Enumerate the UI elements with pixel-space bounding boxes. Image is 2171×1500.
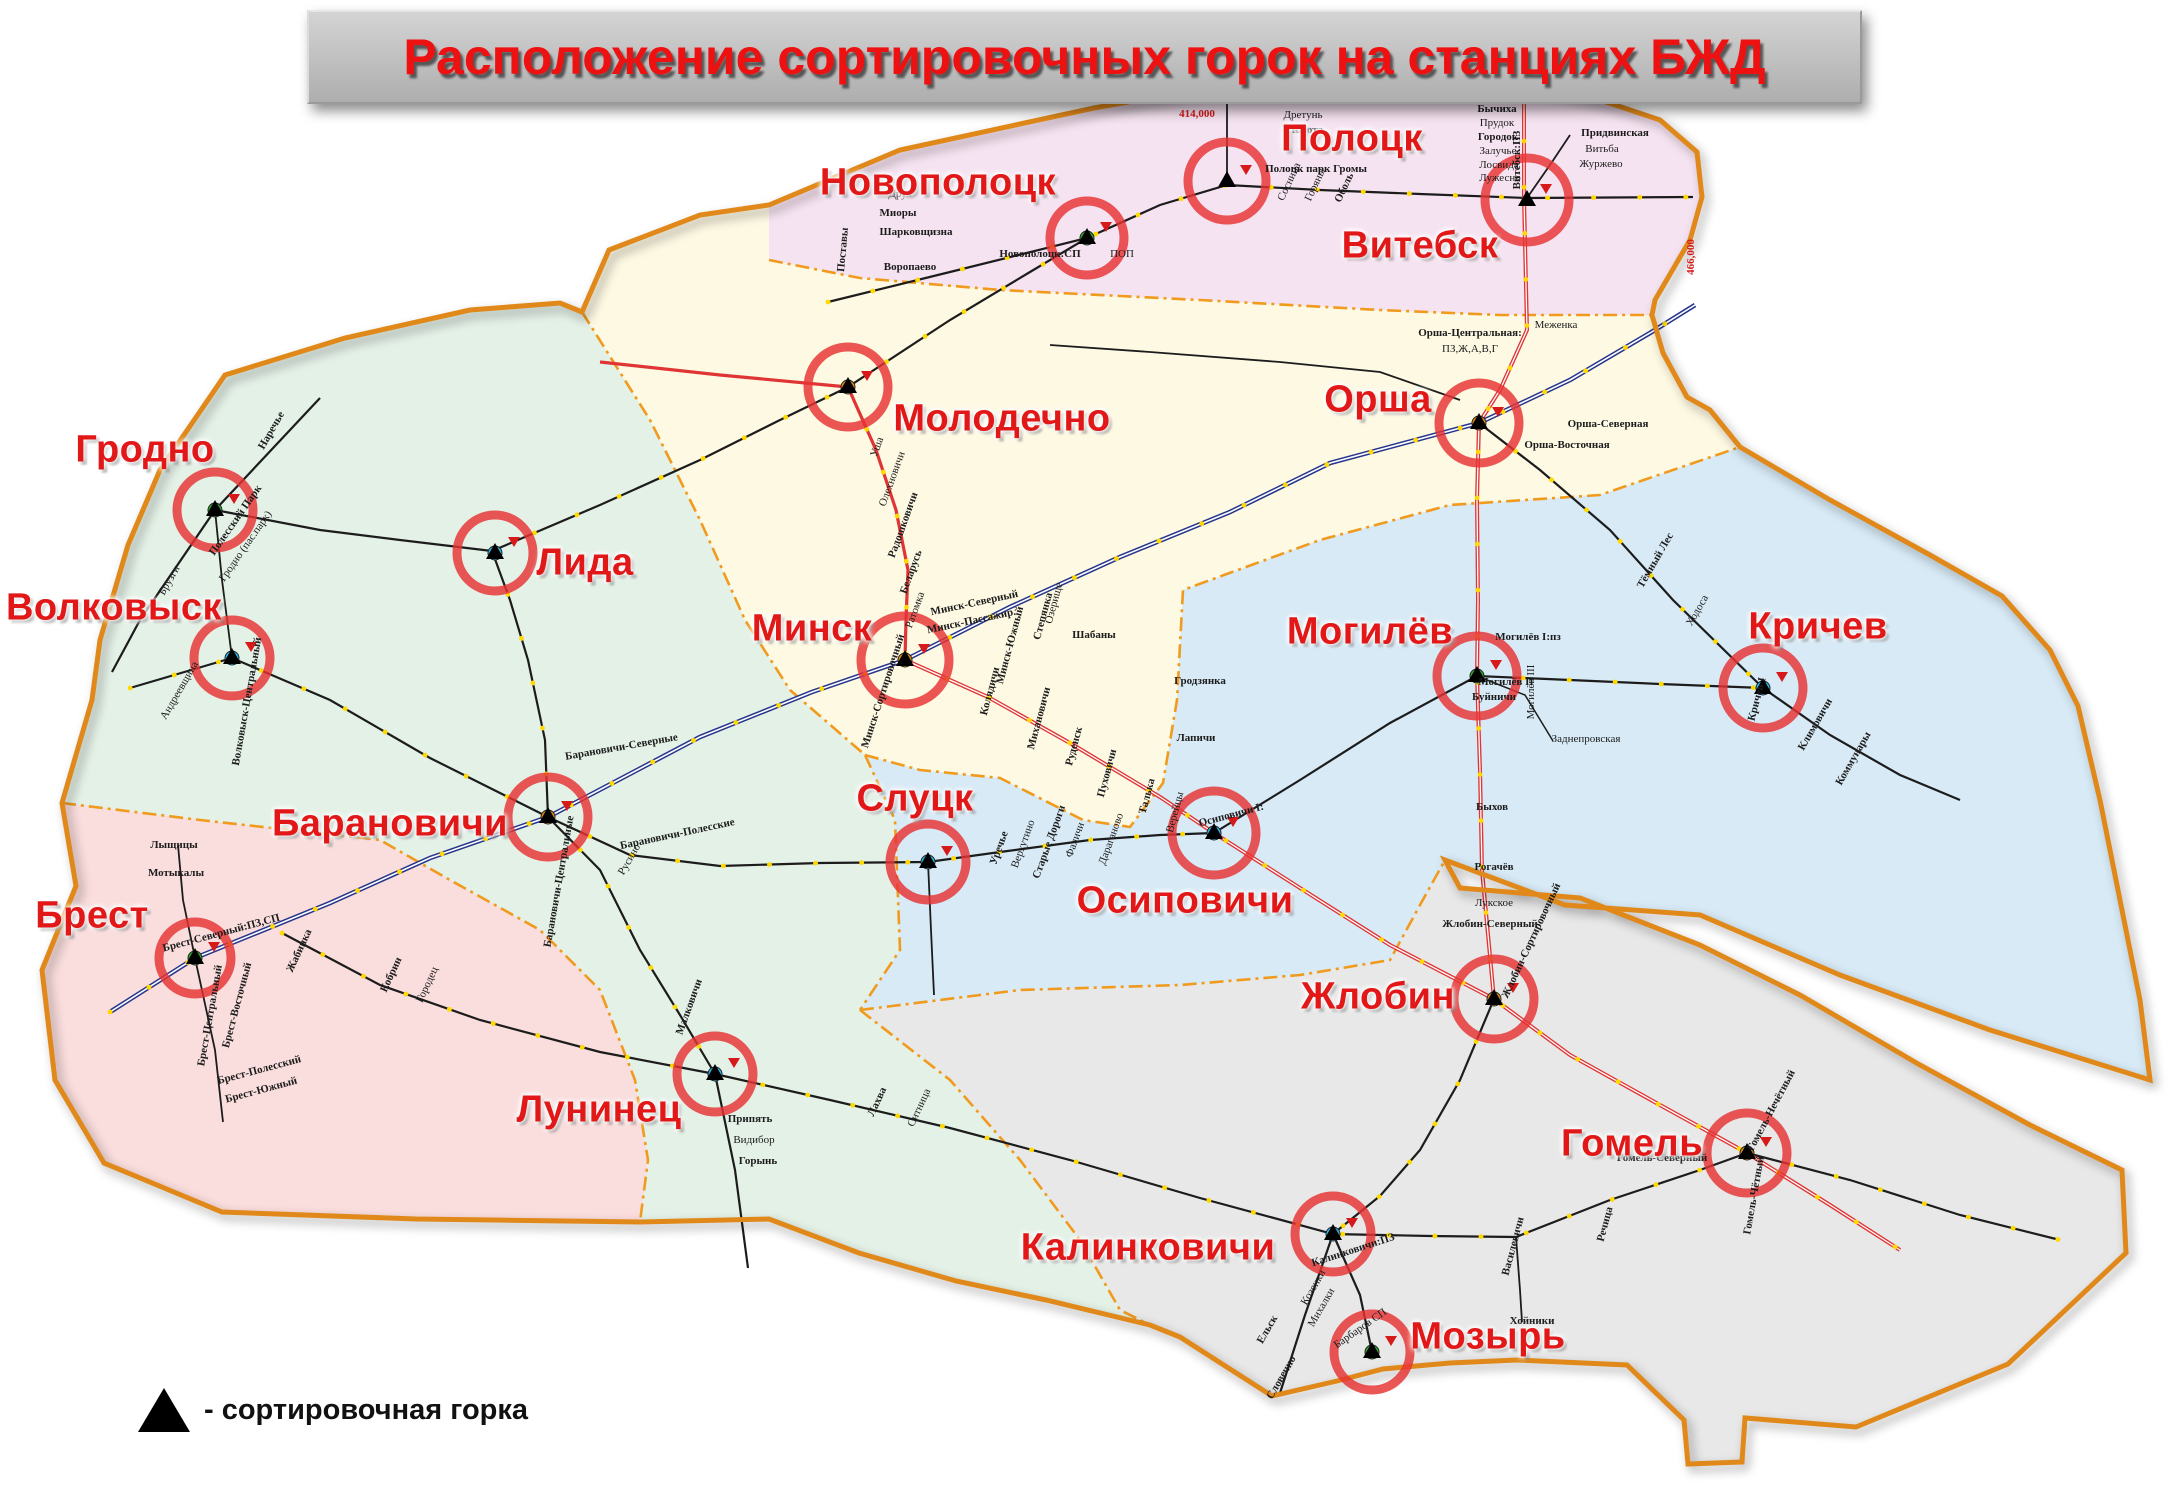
station-label-osipovichi: Осиповичи [1077,880,1294,923]
small-station-label: Лапичи [1177,732,1216,744]
small-station-label: Заднепровская [1552,733,1621,745]
station-label-minsk: Минск [752,608,873,651]
station-label-mozyr: Мозырь [1410,1316,1565,1359]
legend: - сортировочная горка [138,1388,528,1432]
small-station-label: Рогачёв [1474,861,1513,873]
small-station-label: Мотыкалы [148,867,205,879]
station-label-volkovysk: Волковыск [6,587,222,630]
station-label-luninets: Лунинец [516,1089,681,1132]
small-station-label: Орша-Центральная: [1418,327,1522,339]
small-station-label: Новополоцк:СП [999,248,1081,260]
station-label-molodechno: Молодечно [893,398,1110,441]
small-station-label: Лыщицы [150,839,198,851]
station-label-zhlobin: Жлобин [1301,976,1455,1019]
small-station-label: Орша-Восточная [1524,439,1609,451]
station-label-mogilev: Могилёв [1287,611,1453,654]
station-label-baranovichi: Барановичи [272,803,508,846]
small-station-label: Журжево [1579,158,1623,170]
small-station-label: Прудок [1480,117,1515,129]
station-label-slutsk: Слуцк [856,778,973,821]
small-station-label: Гродзянка [1174,675,1226,687]
page-title: Расположение сортировочных горок на стан… [403,28,1765,86]
small-station-label: Бычиха [1477,103,1517,115]
small-station-label: Меженка [1535,319,1578,331]
small-station-label: Придвинская [1581,127,1649,139]
station-label-novopolotsk: Новополоцк [820,162,1056,205]
station-label-orsha: Орша [1324,379,1432,422]
small-station-label: Буйничи [1472,691,1517,703]
small-station-label: Видибор [733,1134,775,1146]
small-station-label: Лукское [1475,897,1513,909]
kilometre-mark-label: 466,000 [1685,239,1697,275]
station-label-lida: Лида [536,542,633,585]
station-label-grodno: Гродно [75,429,214,472]
small-station-label: Воропаево [884,261,937,273]
small-station-label: ПЗ,Ж,А,В,Г [1442,343,1498,355]
kilometre-mark-label: 414,000 [1179,108,1215,120]
small-station-label: Могилёв I:пз [1495,631,1561,643]
map-stage: БычихаПрудокГородокЗалучьеЛосвидаЛужесно… [0,0,2171,1500]
small-station-label: Миоры [880,207,917,219]
small-station-label: Горынь [739,1155,778,1167]
station-label-gomel: Гомель [1561,1123,1703,1166]
station-label-vitebsk: Витебск [1342,225,1499,268]
small-station-label: Шабаны [1072,629,1116,641]
station-label-brest: Брест [35,895,148,938]
small-station-label: Орша-Северная [1568,418,1649,430]
small-station-label: Витебск:ПЗ [1511,130,1523,189]
small-station-label: Жлобин-Северный [1442,918,1538,930]
title-bar: Расположение сортировочных горок на стан… [307,10,1862,104]
legend-label: - сортировочная горка [204,1394,528,1427]
railway-map-svg: БычихаПрудокГородокЗалучьеЛосвидаЛужесно… [0,0,2171,1500]
small-station-label: Витьба [1585,143,1619,155]
small-station-label: Могилёв III [1525,664,1537,719]
station-label-kalinkovichi: Калинковичи [1021,1227,1276,1270]
small-station-label: Быхов [1476,801,1508,813]
station-label-polotsk: Полоцк [1281,118,1423,161]
small-station-label: Шарковщизна [880,226,953,238]
small-station-label: Припять [728,1113,773,1125]
small-station-label: ПОП [1110,248,1134,260]
station-label-krichev: Кричев [1748,606,1887,649]
sorting-hump-icon [138,1388,190,1432]
